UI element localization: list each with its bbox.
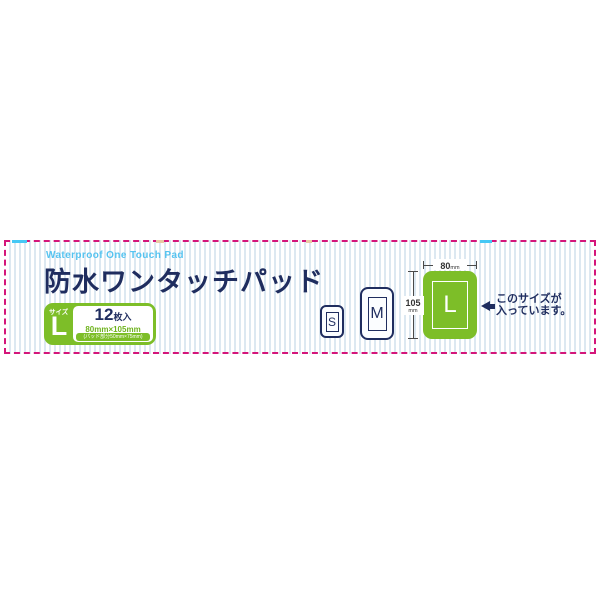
size-badge-detail: 12枚入 80mm×105mm (パッド部分50mm×75mm) bbox=[73, 306, 153, 342]
size-icon-l-letter: L bbox=[432, 281, 468, 329]
size-callout-line2: 入っています。 bbox=[496, 306, 571, 318]
height-unit: mm bbox=[402, 308, 424, 314]
sheet-count-unit: 枚入 bbox=[113, 312, 131, 322]
product-title: 防水ワンタッチパッド bbox=[44, 260, 324, 299]
size-icon-l-highlighted: L bbox=[423, 271, 477, 339]
label-strip: Waterproof One Touch Pad 防水ワンタッチパッド サイズ … bbox=[4, 240, 596, 354]
size-icon-m: M bbox=[360, 287, 394, 340]
width-unit: mm bbox=[450, 265, 459, 271]
size-callout-text: このサイズが 入っています。 bbox=[496, 294, 571, 317]
width-dimension-label: 80mm bbox=[433, 259, 467, 270]
cut-line-cyan-dash bbox=[480, 240, 492, 243]
size-callout-line1: このサイズが bbox=[496, 294, 571, 306]
width-dimension-tick-left bbox=[423, 261, 424, 269]
sheet-count: 12枚入 bbox=[73, 307, 153, 325]
size-icon-s-letter: S bbox=[326, 312, 339, 332]
height-dimension-label: 105 mm bbox=[402, 296, 424, 315]
pad-dimensions-note: (パッド部分50mm×75mm) bbox=[76, 333, 150, 341]
sheet-count-number: 12 bbox=[95, 306, 114, 324]
height-dimension-tick-bottom bbox=[408, 338, 418, 339]
width-dimension-tick-right bbox=[476, 261, 477, 269]
size-badge-value: L bbox=[44, 311, 74, 341]
width-value: 80 bbox=[440, 261, 450, 271]
cut-line-tan-dash bbox=[156, 240, 164, 243]
left-arrow-tail bbox=[489, 304, 495, 309]
package-label-canvas: Waterproof One Touch Pad 防水ワンタッチパッド サイズ … bbox=[0, 0, 600, 600]
left-arrow-icon bbox=[481, 301, 495, 312]
size-icon-m-letter: M bbox=[368, 297, 387, 331]
cut-line-tan-dash bbox=[306, 240, 312, 243]
size-badge: サイズ L 12枚入 80mm×105mm (パッド部分50mm×75mm) bbox=[44, 303, 156, 345]
size-icon-s: S bbox=[320, 305, 344, 338]
cut-line-cyan-dash bbox=[12, 240, 27, 243]
height-value: 105 bbox=[405, 298, 420, 308]
height-dimension-tick-top bbox=[408, 271, 418, 272]
